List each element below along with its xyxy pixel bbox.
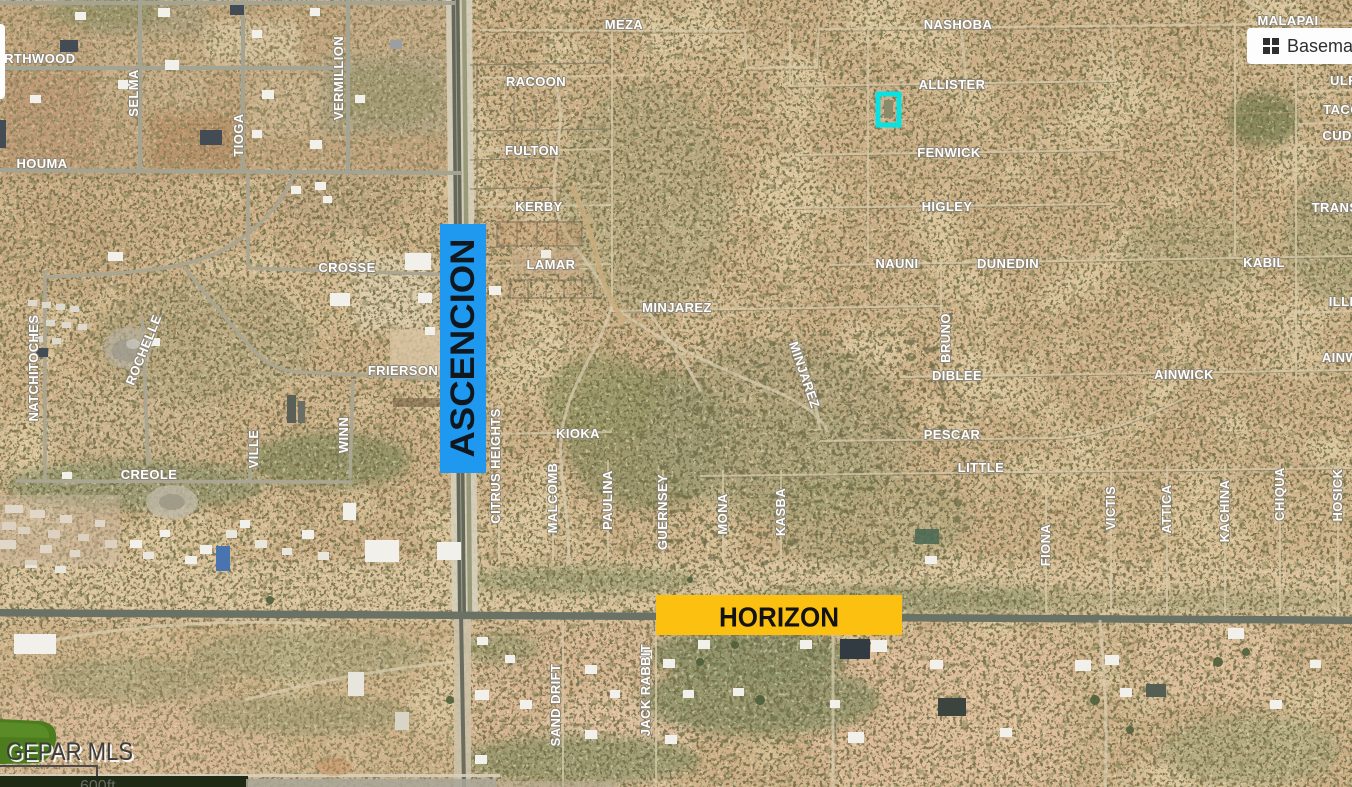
svg-text:CUDA: CUDA	[1322, 128, 1352, 143]
svg-text:HOSICK: HOSICK	[1330, 468, 1345, 521]
svg-text:HOUMA: HOUMA	[16, 156, 67, 171]
svg-text:ASCENCION: ASCENCION	[444, 239, 482, 458]
svg-text:HIGLEY: HIGLEY	[922, 199, 973, 214]
svg-text:VILLE: VILLE	[246, 430, 261, 469]
svg-text:WINN: WINN	[336, 417, 351, 453]
svg-text:TACO: TACO	[1323, 102, 1352, 117]
svg-text:LITTLE: LITTLE	[958, 460, 1004, 475]
svg-text:ATTICA: ATTICA	[1159, 484, 1174, 533]
svg-text:ILLIN: ILLIN	[1329, 294, 1352, 309]
svg-text:VICTIS: VICTIS	[1103, 486, 1118, 530]
svg-text:600ft: 600ft	[80, 778, 116, 787]
svg-text:KACHINA: KACHINA	[1217, 479, 1232, 542]
svg-text:KERBY: KERBY	[515, 199, 563, 214]
svg-text:MONA: MONA	[715, 493, 730, 535]
svg-text:MEZA: MEZA	[605, 17, 644, 32]
svg-text:PESCAR: PESCAR	[924, 427, 981, 442]
svg-text:FIONA: FIONA	[1038, 524, 1053, 567]
svg-text:CROSSE: CROSSE	[318, 260, 375, 275]
svg-text:CITRUS HEIGHTS: CITRUS HEIGHTS	[488, 408, 503, 523]
svg-text:LAMAR: LAMAR	[527, 257, 576, 272]
svg-text:FENWICK: FENWICK	[917, 145, 981, 160]
svg-text:FRIERSON: FRIERSON	[368, 363, 438, 378]
svg-text:Basemap: Basemap	[1287, 36, 1352, 56]
svg-text:TIOGA: TIOGA	[231, 113, 246, 156]
svg-text:HORIZON: HORIZON	[719, 602, 839, 633]
svg-text:CREOLE: CREOLE	[121, 467, 178, 482]
svg-text:AINW: AINW	[1322, 350, 1352, 365]
svg-text:MALCOMB: MALCOMB	[545, 463, 560, 534]
svg-text:ULRI: ULRI	[1330, 73, 1352, 88]
svg-text:ALLISTER: ALLISTER	[919, 77, 986, 92]
svg-text:KIOKA: KIOKA	[556, 426, 600, 441]
svg-text:AINWICK: AINWICK	[1154, 367, 1214, 382]
svg-text:MINJAREZ: MINJAREZ	[642, 300, 712, 315]
svg-text:NASHOBA: NASHOBA	[924, 17, 993, 32]
svg-text:FULTON: FULTON	[505, 143, 559, 158]
svg-text:JACK RABBIT: JACK RABBIT	[638, 644, 653, 737]
svg-text:NAUNI: NAUNI	[875, 256, 918, 271]
svg-text:KASBA: KASBA	[773, 488, 788, 536]
svg-text:RACOON: RACOON	[506, 74, 566, 89]
svg-text:DUNEDIN: DUNEDIN	[977, 256, 1039, 271]
svg-text:BRUNO: BRUNO	[938, 313, 953, 363]
svg-text:SELMA: SELMA	[126, 69, 141, 117]
svg-text:SAND DRIFT: SAND DRIFT	[548, 664, 563, 747]
svg-text:TRANS: TRANS	[1312, 200, 1352, 215]
svg-text:GUERNSEY: GUERNSEY	[655, 474, 670, 550]
svg-text:MALAPAI: MALAPAI	[1257, 13, 1318, 28]
svg-text:VERMILLION: VERMILLION	[331, 36, 346, 120]
svg-text:NATCHITOCHES: NATCHITOCHES	[26, 315, 41, 422]
svg-text:DIBLEE: DIBLEE	[932, 368, 982, 383]
svg-text:GEPAR MLS: GEPAR MLS	[6, 738, 133, 766]
svg-text:JRTHWOOD: JRTHWOOD	[0, 51, 76, 66]
svg-text:KABIL: KABIL	[1243, 255, 1285, 270]
svg-text:PAULINA: PAULINA	[600, 470, 615, 530]
svg-text:CHIQUA: CHIQUA	[1272, 467, 1287, 521]
